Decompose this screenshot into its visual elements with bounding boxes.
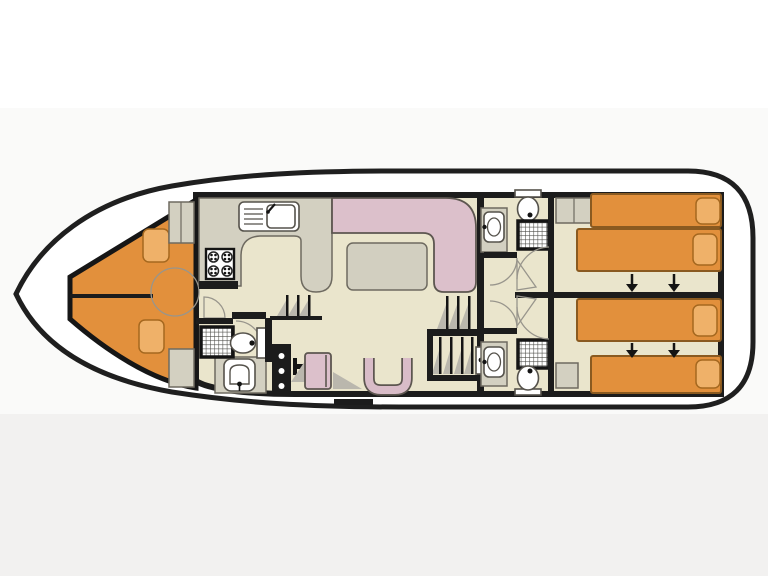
bow-wardrobe-top — [169, 202, 194, 243]
galley-sink — [239, 202, 299, 231]
shower — [518, 340, 549, 368]
washbasin — [224, 359, 255, 391]
aft-cabins-divider-wall — [515, 292, 721, 298]
shower — [518, 221, 549, 249]
toilet — [515, 190, 541, 221]
background-band-bottom — [0, 414, 768, 576]
bow-wardrobe-bottom — [169, 349, 194, 387]
bathroom-right-wall — [265, 318, 272, 362]
bow-bed-pillow-top — [143, 229, 169, 262]
bed-pillow — [696, 198, 720, 224]
saloon-table — [347, 243, 427, 290]
helm-bench-seat — [305, 353, 331, 389]
washbasin — [482, 347, 504, 377]
saloon — [332, 198, 476, 292]
page — [0, 0, 768, 576]
washbasin — [482, 212, 504, 242]
floor-plan — [0, 0, 768, 576]
bathroom-top-wall — [196, 318, 233, 324]
wardrobe — [556, 198, 592, 223]
galley-lower-wall — [199, 281, 238, 289]
wardrobe — [556, 363, 578, 388]
bed-pillow — [693, 234, 717, 265]
side-entry-step-bar — [334, 399, 373, 405]
shower — [201, 327, 233, 357]
stove — [206, 249, 234, 279]
bow-bed-pillow-bottom — [139, 320, 164, 353]
bed-pillow — [696, 360, 720, 388]
bow-bed-divider-wall — [70, 294, 153, 298]
bathroom-door-stub-wall — [232, 312, 266, 319]
bed-pillow — [693, 305, 717, 336]
